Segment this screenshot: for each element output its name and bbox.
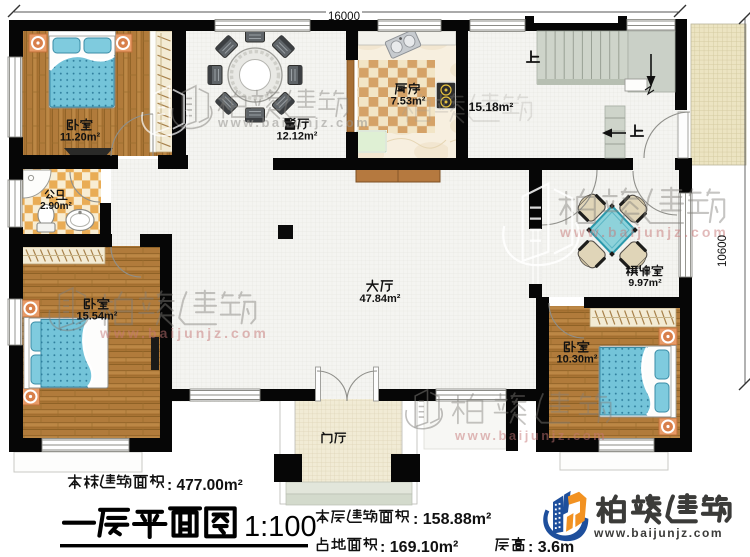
svg-text:12.12m²: 12.12m²	[277, 131, 318, 143]
svg-text:1:100: 1:100	[244, 511, 317, 543]
svg-text:www.baijunjz.com: www.baijunjz.com	[99, 325, 269, 341]
svg-text:www.baijunjz.com: www.baijunjz.com	[559, 224, 729, 240]
svg-text:11.20m²: 11.20m²	[60, 132, 101, 144]
svg-text:: 158.88m²: : 158.88m²	[413, 511, 491, 528]
svg-text:47.84m²: 47.84m²	[360, 293, 401, 305]
svg-text:9.97m²: 9.97m²	[628, 277, 662, 289]
svg-text:7.53m²: 7.53m²	[391, 96, 426, 108]
svg-text:15.18m²: 15.18m²	[469, 100, 514, 114]
svg-text:: 169.10m²: : 169.10m²	[380, 539, 458, 556]
svg-text:www.baijunjz.com: www.baijunjz.com	[593, 526, 723, 540]
svg-text:16000: 16000	[328, 11, 360, 23]
svg-text:10.30m²: 10.30m²	[557, 354, 598, 366]
svg-text:: 477.00m²: : 477.00m²	[167, 477, 243, 494]
svg-text:2.90m²: 2.90m²	[40, 201, 72, 212]
svg-text:: 3.6m: : 3.6m	[528, 539, 574, 556]
svg-text:15.54m²: 15.54m²	[77, 311, 118, 323]
svg-text:10600: 10600	[717, 235, 729, 267]
svg-text:www.baijunjz.com: www.baijunjz.com	[454, 428, 607, 443]
